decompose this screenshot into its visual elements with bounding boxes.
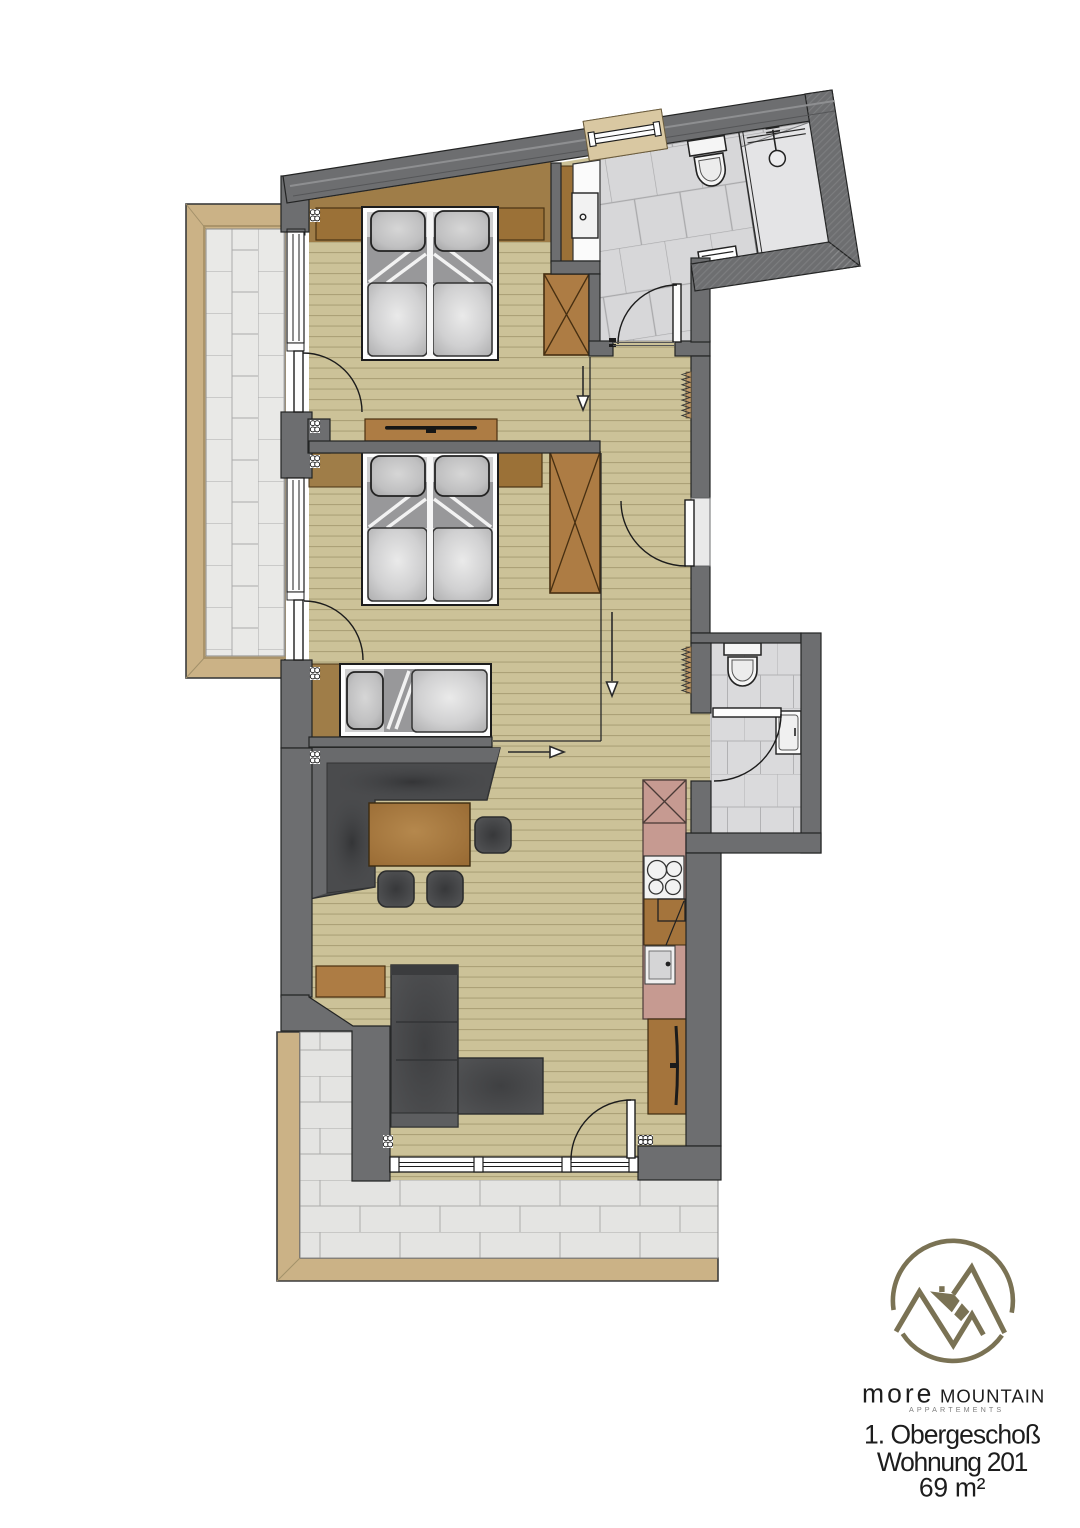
svg-text:69 m²: 69 m² — [919, 1473, 986, 1503]
svg-text:APPARTEMENTS: APPARTEMENTS — [909, 1405, 1004, 1414]
svg-text:1. Obergeschoß: 1. Obergeschoß — [864, 1419, 1041, 1449]
svg-text:MOUNTAIN: MOUNTAIN — [940, 1386, 1045, 1407]
